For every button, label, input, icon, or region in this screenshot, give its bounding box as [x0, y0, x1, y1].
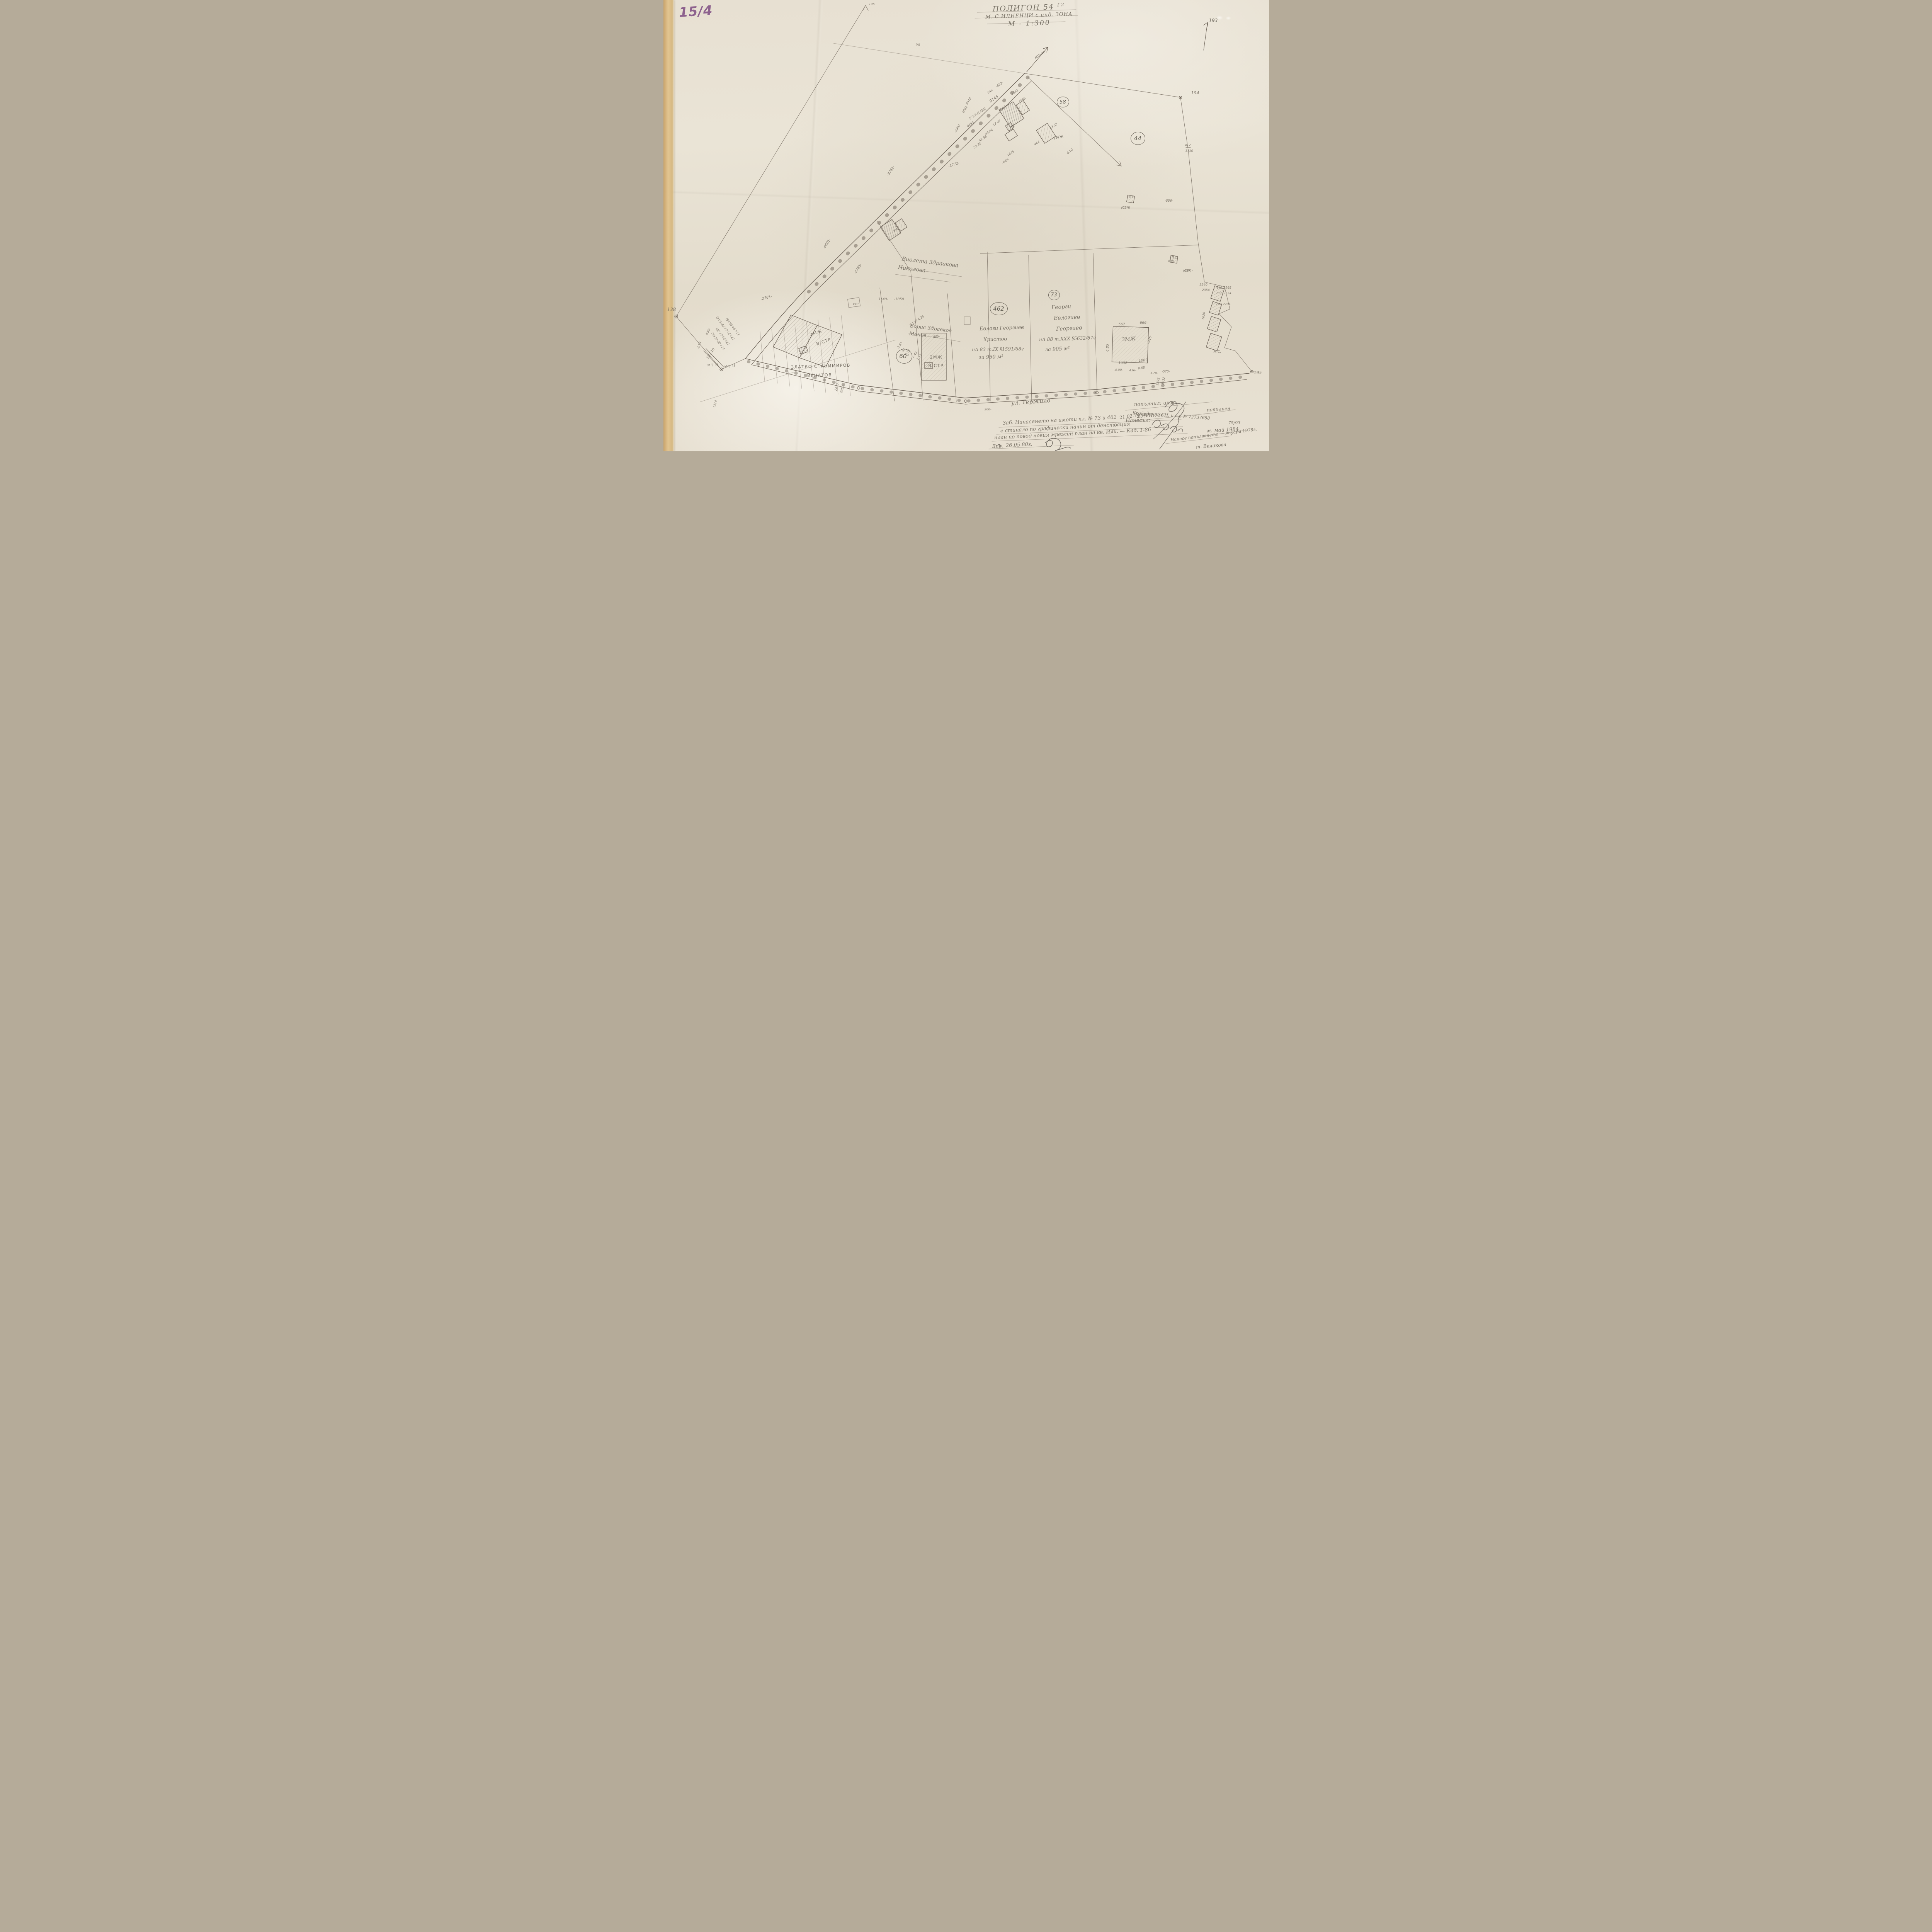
survey-point-label: 138 [667, 307, 676, 312]
parcel-boundaries [700, 221, 1198, 402]
measurement-label: -581- [1185, 269, 1193, 272]
corner-stamp: 15/4 [678, 3, 713, 20]
building-label: ПС [1129, 196, 1135, 199]
measurement-label: -556- [1165, 199, 1173, 202]
survey-point-label: 194 [1191, 90, 1199, 95]
measurement-label: 90 [916, 43, 920, 47]
building-label: ПС [1172, 256, 1178, 259]
note-cad-ref2: 75/93 [1228, 420, 1241, 425]
measurement-label: 1032 [1119, 361, 1128, 365]
measurement-label: 412 [1185, 143, 1191, 147]
measurement-label: 6.85 [1106, 344, 1110, 352]
owner-name: Христов [983, 336, 1007, 343]
note-sign: Дир. [992, 443, 1003, 449]
measurement-label: 2354 [1202, 288, 1210, 292]
measurement-label: 842 2968 [1217, 286, 1231, 289]
measurement-label: 747 2284 [1216, 303, 1231, 306]
survey-point-label: МТ II [707, 363, 719, 368]
measurement-label: 200- [985, 408, 992, 411]
owner-name: ИГНАТОВ [807, 372, 832, 378]
title-block: ПОЛИГОН 54 Г2 М. С ИЛИЕНЦИ с инд. ЗОНА М… [974, 1, 1083, 29]
deed-reference: нА 83 т.IX §1591/68г [971, 346, 1023, 352]
measurement-label: -570- [1162, 370, 1170, 373]
measurement-label: 1003 [1138, 359, 1147, 363]
building-label: М.С. [1214, 350, 1221, 354]
survey-point-label: 195 [1254, 370, 1262, 375]
measurement-label: 196 [869, 2, 875, 6]
parcel-number-44: 44 [1131, 132, 1145, 145]
measurement-label: -4.00- [1114, 368, 1123, 372]
scanned-cadastral-sheet: 15/4 ПОЛИГОН 54 Г2 М. С ИЛИЕНЦИ с инд. З… [663, 0, 1269, 451]
measurement-label: -1850 [894, 298, 904, 301]
measurement-label: 436- [1129, 369, 1136, 372]
building-label: 3МЖ [1121, 336, 1136, 342]
parcel-area: за 950 м² [978, 354, 1003, 361]
parcel-number-462: 462 [990, 302, 1008, 315]
building-label: свн [853, 302, 859, 306]
owner-name: Георги [1051, 303, 1071, 311]
measurement-label: 2340 [1200, 283, 1207, 286]
parcel-number-58: 58 [1057, 97, 1069, 107]
building-label: (СВН) [1121, 206, 1130, 209]
measurement-label: 567 [1119, 323, 1125, 327]
building-label: 2МЖ [930, 355, 943, 360]
measurement-label: 838 2734 [1217, 291, 1231, 295]
measurement-label: 408 [1168, 259, 1174, 263]
parcel-number-73: 73 [1048, 290, 1060, 300]
map-drawing [663, 0, 1269, 451]
measurement-label: 3140- [878, 298, 888, 301]
measurement-label: -666- [1139, 321, 1148, 325]
survey-point-label: 193 [1209, 18, 1218, 23]
measurement-label: 3.78- [1150, 371, 1158, 375]
measurement-label: 1710 [1185, 149, 1193, 153]
building-label: В СТР [929, 363, 944, 368]
